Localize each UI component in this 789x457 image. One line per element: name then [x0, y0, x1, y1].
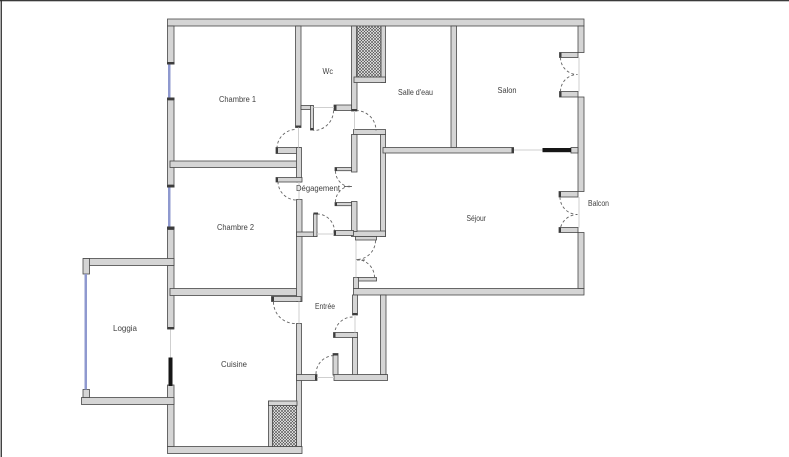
- svg-text:Séjour: Séjour: [467, 213, 487, 223]
- svg-text:Wc: Wc: [323, 66, 334, 76]
- svg-text:Salle d'eau: Salle d'eau: [398, 87, 433, 97]
- svg-text:Salon: Salon: [498, 85, 517, 95]
- svg-text:Chambre 1: Chambre 1: [219, 94, 256, 104]
- svg-text:Balcon: Balcon: [588, 198, 609, 208]
- svg-text:Chambre 2: Chambre 2: [217, 222, 254, 232]
- svg-text:Entrée: Entrée: [315, 301, 335, 311]
- svg-text:Dégagement: Dégagement: [296, 183, 341, 193]
- svg-text:Cuisine: Cuisine: [221, 359, 247, 369]
- svg-text:Loggia: Loggia: [113, 323, 137, 333]
